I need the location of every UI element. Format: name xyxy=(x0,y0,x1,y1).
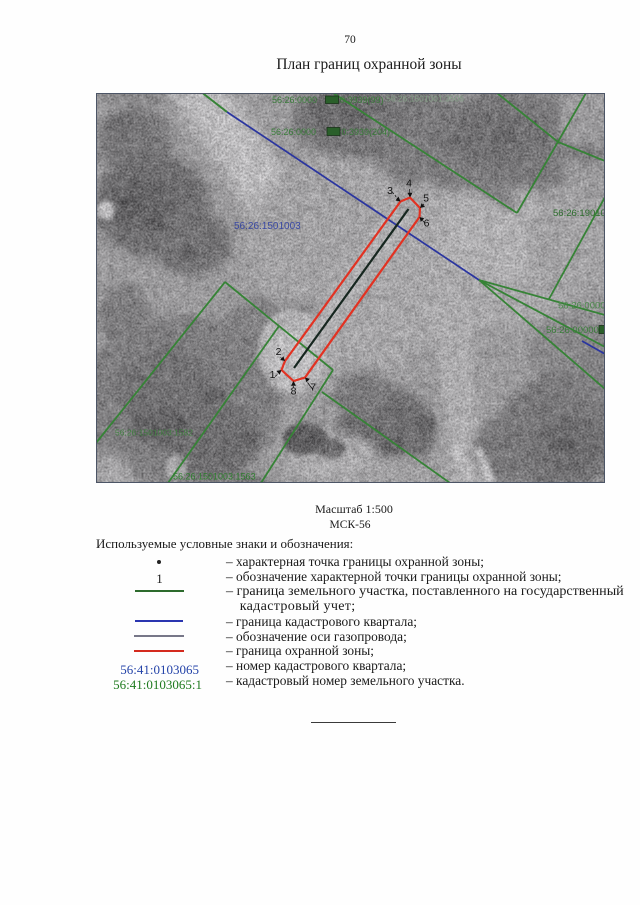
svg-text:56:26:1501003:1582: 56:26:1501003:1582 xyxy=(115,428,193,438)
svg-text:6: 6 xyxy=(424,218,430,230)
svg-text:56:26:0000: 56:26:0000 xyxy=(272,95,317,105)
svg-text:56:26:0000: 56:26:0000 xyxy=(271,127,316,137)
svg-text:0:3939(99): 0:3939(99) xyxy=(340,95,384,105)
svg-text:56:26:19010: 56:26:19010 xyxy=(553,208,605,219)
svg-text:3: 3 xyxy=(387,185,393,197)
svg-text:2: 2 xyxy=(276,346,282,358)
svg-text:0:3939(204): 0:3939(204) xyxy=(342,127,391,137)
svg-text:56:26:1501001:3506: 56:26:1501001:3506 xyxy=(386,94,464,104)
svg-text:4: 4 xyxy=(406,178,412,190)
svg-text:56:26:1501003:1563: 56:26:1501003:1563 xyxy=(173,472,256,482)
svg-text:1: 1 xyxy=(270,369,276,381)
svg-text:56:26:1501003: 56:26:1501003 xyxy=(234,221,301,232)
svg-text:5: 5 xyxy=(423,193,429,205)
svg-text:56:26:0000: 56:26:0000 xyxy=(558,301,605,312)
svg-text:56:26:00000: 56:26:00000 xyxy=(546,325,599,336)
